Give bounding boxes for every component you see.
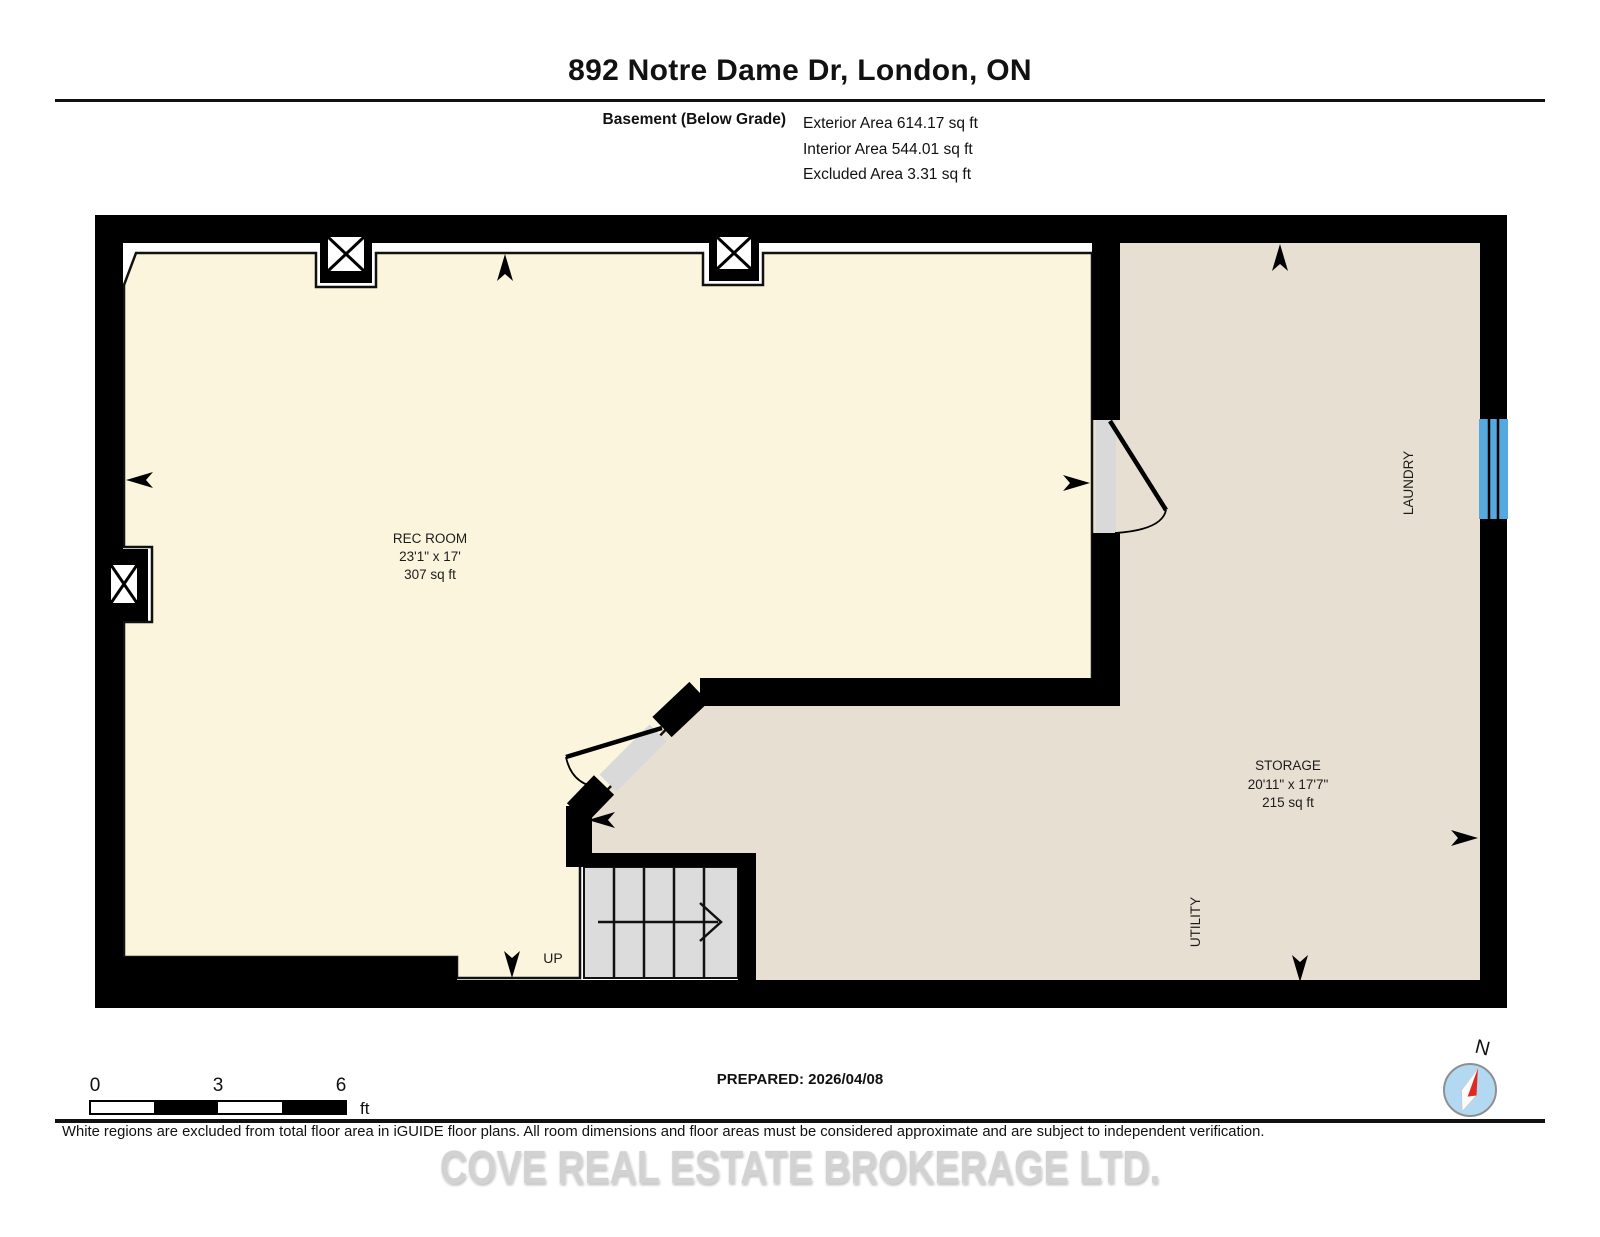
exterior-wall-bottom-left bbox=[123, 957, 457, 980]
scale-tick-6: 6 bbox=[336, 1075, 347, 1096]
utility-name: UTILITY bbox=[1188, 897, 1203, 947]
scale-tick-0: 0 bbox=[90, 1075, 101, 1096]
prepared-date: PREPARED: 2026/04/08 bbox=[600, 1071, 1000, 1088]
rec-room-name: REC ROOM bbox=[393, 531, 467, 546]
floorplan-svg: REC ROOM 23'1" x 17' 307 sq ft STORAGE 2… bbox=[0, 0, 1600, 1237]
floorplan-page: 892 Notre Dame Dr, London, ON Basement (… bbox=[0, 0, 1600, 1237]
scale-bar: 0 3 6 ft bbox=[90, 1075, 370, 1118]
storage-dims: 20'11" x 17'7" bbox=[1248, 777, 1329, 792]
storage-name: STORAGE bbox=[1255, 758, 1321, 773]
rec-room-dims: 23'1" x 17' bbox=[399, 549, 461, 564]
storage-area: 215 sq ft bbox=[1262, 795, 1314, 810]
staircase bbox=[584, 867, 738, 978]
stairs-up-label: UP bbox=[543, 950, 562, 966]
wall-post-marker-top-right bbox=[709, 215, 759, 281]
brokerage-watermark: COVE REAL ESTATE BROKERAGE LTD. bbox=[144, 1140, 1456, 1194]
wall-post-marker-top-left bbox=[320, 215, 372, 283]
laundry-name: LAUNDRY bbox=[1401, 451, 1416, 515]
scale-tick-3: 3 bbox=[213, 1075, 224, 1096]
disclaimer-text: White regions are excluded from total fl… bbox=[62, 1124, 1264, 1140]
compass-north-label: N bbox=[1473, 1036, 1492, 1061]
footer-divider bbox=[55, 1119, 1545, 1123]
laundry-window bbox=[1479, 419, 1508, 519]
wall-post-marker-left bbox=[95, 549, 148, 621]
scale-unit-label: ft bbox=[360, 1099, 370, 1118]
rec-room-area: 307 sq ft bbox=[404, 567, 456, 582]
compass-rose: N bbox=[1444, 1036, 1496, 1116]
